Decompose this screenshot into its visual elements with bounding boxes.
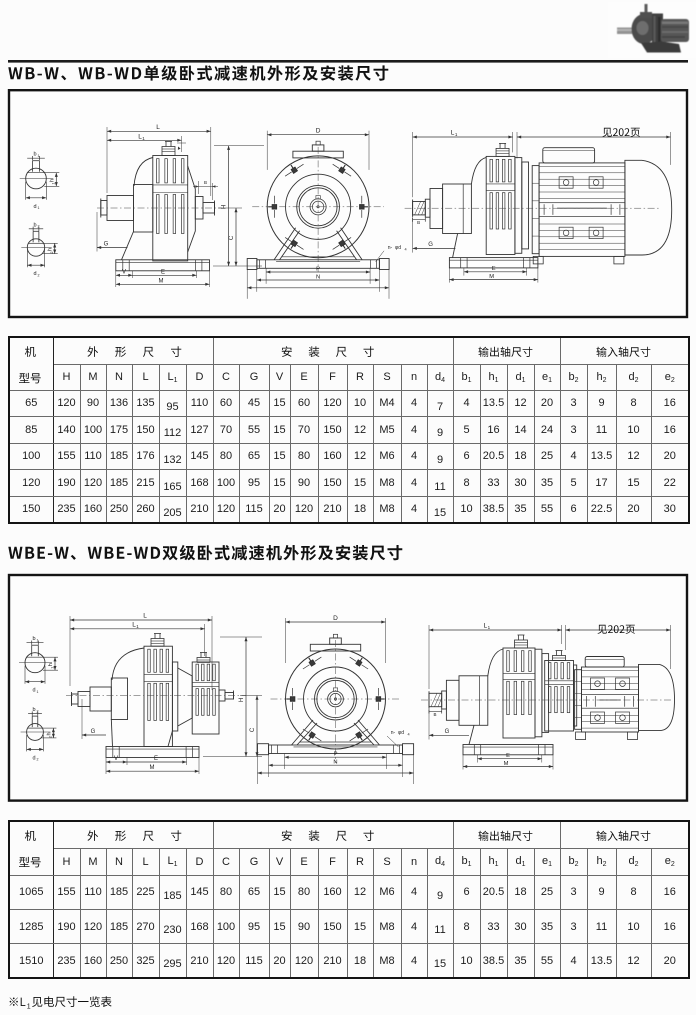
svg-text:H: H xyxy=(239,698,245,702)
svg-text:h: h xyxy=(48,663,54,666)
svg-text:b: b xyxy=(33,222,36,228)
svg-text:G: G xyxy=(445,729,450,735)
svg-text:P: P xyxy=(334,752,338,758)
svg-text:d: d xyxy=(32,688,35,694)
svg-text:n-: n- xyxy=(391,730,396,736)
svg-text:4: 4 xyxy=(407,733,409,737)
svg-text:φd: φd xyxy=(395,245,401,251)
svg-text:M: M xyxy=(150,765,155,771)
svg-text:2: 2 xyxy=(49,736,53,738)
svg-text:H: H xyxy=(222,205,228,209)
svg-text:1: 1 xyxy=(38,154,40,158)
svg-text:E: E xyxy=(154,756,158,762)
svg-text:M: M xyxy=(159,278,164,284)
svg-text:V: V xyxy=(122,269,126,275)
svg-text:2: 2 xyxy=(37,758,39,762)
svg-text:2: 2 xyxy=(50,252,54,254)
svg-text:1: 1 xyxy=(38,206,40,210)
svg-text:1: 1 xyxy=(37,690,39,694)
svg-text:b: b xyxy=(32,636,35,642)
svg-text:1: 1 xyxy=(52,183,56,185)
svg-text:1: 1 xyxy=(50,667,54,669)
svg-text:d: d xyxy=(33,204,36,210)
svg-text:b: b xyxy=(32,707,35,713)
svg-text:L: L xyxy=(143,613,147,620)
svg-text:P: P xyxy=(316,266,320,272)
svg-text:d: d xyxy=(33,271,36,277)
svg-text:G: G xyxy=(428,242,433,248)
svg-text:V: V xyxy=(114,756,118,762)
svg-text:4: 4 xyxy=(404,247,406,251)
svg-text:d: d xyxy=(32,755,35,761)
svg-text:b: b xyxy=(33,152,36,158)
svg-text:M: M xyxy=(504,761,509,767)
svg-text:G: G xyxy=(104,241,109,247)
svg-text:B: B xyxy=(417,220,420,225)
svg-text:E: E xyxy=(492,266,496,272)
svg-text:2: 2 xyxy=(37,709,39,713)
svg-text:h: h xyxy=(46,732,52,735)
svg-text:h: h xyxy=(48,248,54,251)
svg-text:E: E xyxy=(506,753,510,759)
svg-text:B: B xyxy=(433,712,436,717)
svg-text:D: D xyxy=(333,615,338,622)
svg-text:φd: φd xyxy=(398,730,404,736)
svg-text:h: h xyxy=(49,179,55,182)
svg-text:1: 1 xyxy=(27,1004,31,1011)
svg-text:C: C xyxy=(250,727,256,732)
svg-text:L: L xyxy=(156,124,160,131)
svg-text:E: E xyxy=(161,269,165,275)
svg-text:M: M xyxy=(489,274,494,280)
svg-text:2: 2 xyxy=(38,274,40,278)
svg-text:2: 2 xyxy=(38,225,40,229)
svg-text:N: N xyxy=(316,274,320,280)
svg-text:C: C xyxy=(229,235,235,240)
svg-text:B: B xyxy=(204,180,207,185)
svg-text:G: G xyxy=(91,729,96,735)
svg-text:n-: n- xyxy=(388,245,393,251)
svg-text:1: 1 xyxy=(37,639,39,643)
svg-text:D: D xyxy=(316,128,321,135)
svg-text:N: N xyxy=(333,760,337,766)
